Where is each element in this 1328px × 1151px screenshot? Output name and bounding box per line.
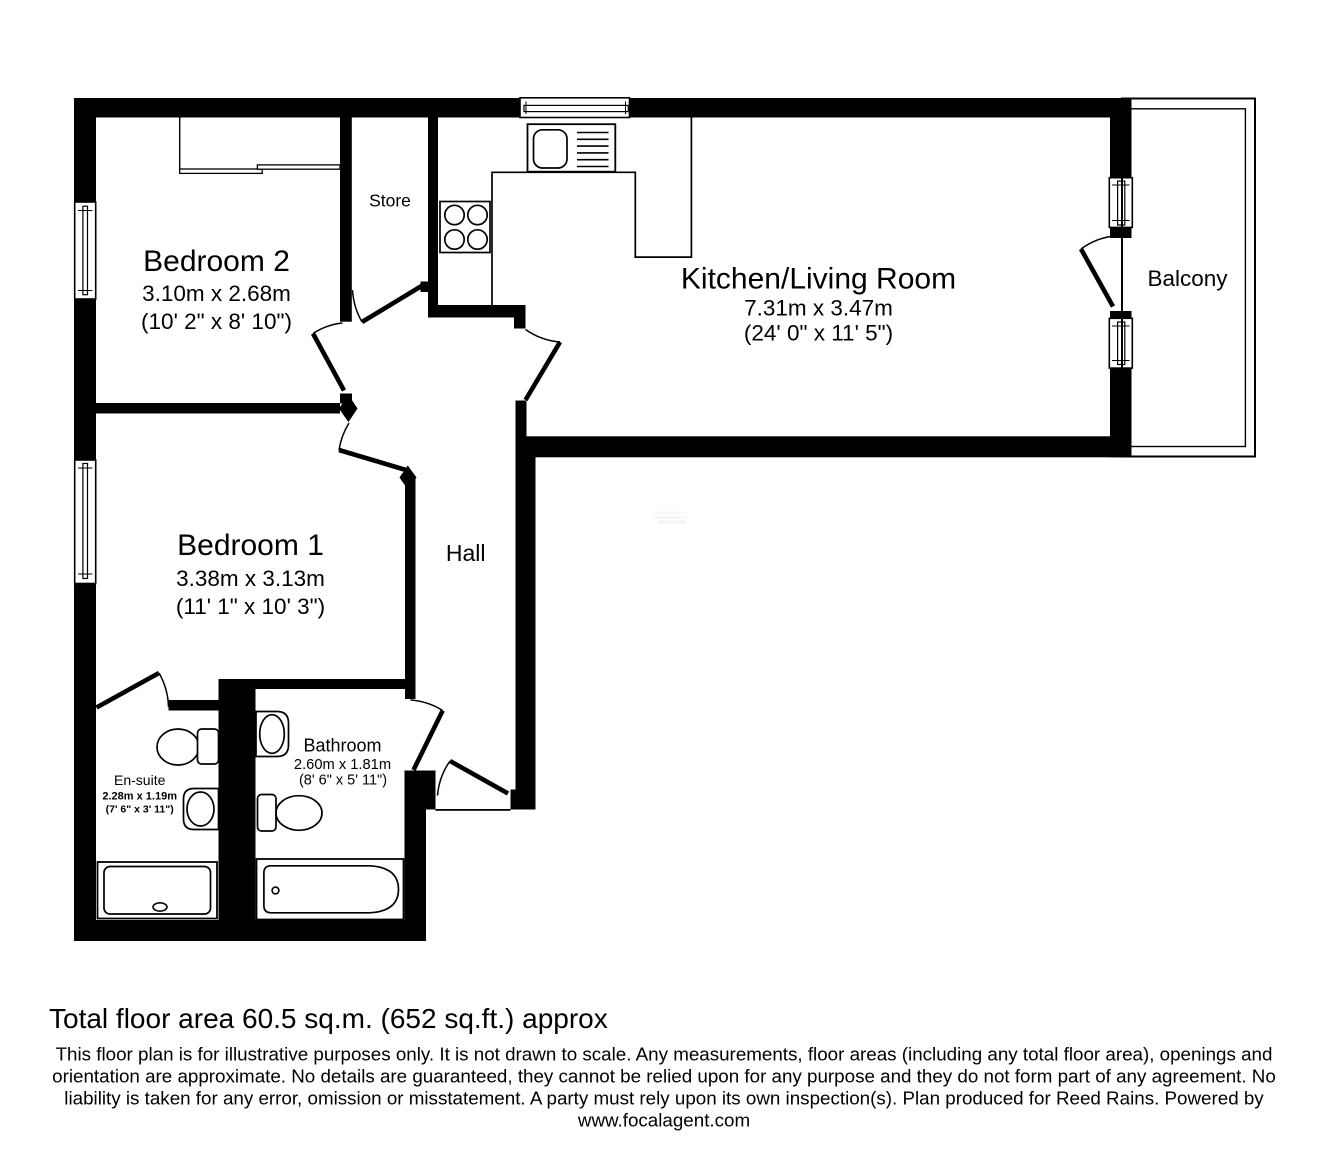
svg-text:Store: Store xyxy=(369,191,411,211)
svg-text:7.31m x 3.47m: 7.31m x 3.47m xyxy=(744,296,893,321)
svg-text:(8' 6" x 5' 11"): (8' 6" x 5' 11") xyxy=(299,773,387,789)
svg-text:www.focalagent.com: www.focalagent.com xyxy=(577,1110,750,1131)
svg-text:Kitchen/Living Room: Kitchen/Living Room xyxy=(681,263,956,296)
svg-text:(7' 6" x 3' 11"): (7' 6" x 3' 11") xyxy=(106,804,174,816)
svg-text:En-suite: En-suite xyxy=(114,772,166,788)
svg-text:This floor plan is for illustr: This floor plan is for illustrative purp… xyxy=(56,1044,1273,1065)
svg-text:Bathroom: Bathroom xyxy=(303,736,381,756)
svg-text:3.38m x 3.13m: 3.38m x 3.13m xyxy=(176,566,325,591)
svg-text:liability is taken for any err: liability is taken for any error, omissi… xyxy=(64,1088,1264,1109)
svg-text:Bedroom 2: Bedroom 2 xyxy=(143,245,290,278)
svg-text:Bedroom 1: Bedroom 1 xyxy=(177,529,324,562)
svg-text:(11' 1" x 10' 3"): (11' 1" x 10' 3") xyxy=(176,594,325,619)
svg-text:Hall: Hall xyxy=(446,540,486,566)
svg-text:orientation are approximate. N: orientation are approximate. No details … xyxy=(52,1066,1276,1087)
svg-text:(10' 2" x 8' 10"): (10' 2" x 8' 10") xyxy=(141,309,292,334)
svg-text:Balcony: Balcony xyxy=(1147,266,1228,291)
svg-text:Total floor area 60.5 sq.m. (6: Total floor area 60.5 sq.m. (652 sq.ft.)… xyxy=(49,1003,608,1034)
svg-text:(24' 0" x 11' 5"): (24' 0" x 11' 5") xyxy=(744,321,893,346)
svg-text:2.60m x 1.81m: 2.60m x 1.81m xyxy=(294,757,391,773)
svg-text:2.28m x 1.19m: 2.28m x 1.19m xyxy=(102,791,177,803)
svg-text:3.10m x 2.68m: 3.10m x 2.68m xyxy=(142,281,291,306)
